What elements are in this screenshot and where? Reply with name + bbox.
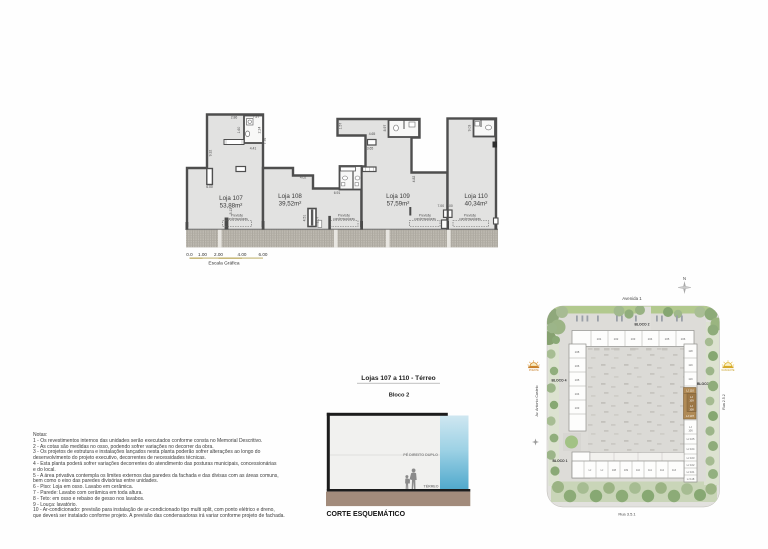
svg-text:7.76: 7.76 xyxy=(263,138,267,145)
svg-text:LJ 110: LJ 110 xyxy=(686,389,694,393)
svg-text:40,34m²: 40,34m² xyxy=(465,201,488,208)
svg-text:BLOCO 1: BLOCO 1 xyxy=(552,459,567,463)
svg-text:CORTE ESQUEMÁTICO: CORTE ESQUEMÁTICO xyxy=(327,509,406,518)
svg-text:Rua 3.5.1: Rua 3.5.1 xyxy=(618,512,636,517)
svg-text:106: 106 xyxy=(575,364,580,368)
svg-text:3.65: 3.65 xyxy=(367,147,374,151)
svg-text:103: 103 xyxy=(575,406,580,410)
svg-text:119: 119 xyxy=(688,363,693,367)
svg-text:105: 105 xyxy=(575,378,580,382)
svg-text:4.00: 4.00 xyxy=(446,204,453,208)
svg-text:0.0: 0.0 xyxy=(186,252,193,257)
svg-text:2.86: 2.86 xyxy=(231,116,238,120)
svg-text:109: 109 xyxy=(624,469,629,472)
svg-text:LJ 118: LJ 118 xyxy=(687,477,695,481)
svg-text:PÉ DIREITO DUPLO: PÉ DIREITO DUPLO xyxy=(403,452,438,457)
svg-text:104: 104 xyxy=(575,392,580,396)
svg-text:LJ 104: LJ 104 xyxy=(687,447,695,451)
svg-text:condensadoras: condensadoras xyxy=(459,217,481,221)
svg-text:4.82: 4.82 xyxy=(412,176,416,183)
svg-text:108: 108 xyxy=(612,469,617,472)
svg-text:condensadoras: condensadoras xyxy=(226,217,248,221)
svg-text:106: 106 xyxy=(688,428,693,432)
svg-text:39,52m²: 39,52m² xyxy=(279,201,302,208)
svg-text:119: 119 xyxy=(688,377,693,381)
svg-text:2.00: 2.00 xyxy=(214,252,223,257)
svg-text:101: 101 xyxy=(597,337,602,341)
svg-text:108: 108 xyxy=(689,407,694,411)
svg-text:113: 113 xyxy=(672,469,677,472)
svg-text:BLOCO 2: BLOCO 2 xyxy=(634,323,649,327)
svg-text:4.02: 4.02 xyxy=(300,176,307,180)
svg-text:9.32: 9.32 xyxy=(209,150,213,157)
svg-text:1.60: 1.60 xyxy=(237,127,241,134)
svg-text:4.51: 4.51 xyxy=(303,215,307,222)
svg-text:8.97: 8.97 xyxy=(383,125,387,132)
svg-text:105: 105 xyxy=(665,337,670,341)
svg-text:POENTE: POENTE xyxy=(529,369,539,372)
svg-text:5.13: 5.13 xyxy=(229,208,233,215)
svg-text:Loja 109: Loja 109 xyxy=(386,193,410,200)
svg-text:4.41: 4.41 xyxy=(250,147,257,151)
svg-text:LJ 102: LJ 102 xyxy=(687,463,695,467)
svg-text:103: 103 xyxy=(631,337,636,341)
svg-text:9.03: 9.03 xyxy=(468,125,472,132)
svg-text:109: 109 xyxy=(689,398,694,402)
svg-text:1.00: 1.00 xyxy=(198,252,207,257)
svg-text:111: 111 xyxy=(648,469,652,472)
svg-text:LJ 107: LJ 107 xyxy=(686,414,694,418)
svg-text:Loja 110: Loja 110 xyxy=(464,193,488,200)
svg-text:N: N xyxy=(683,276,686,281)
svg-text:1.57: 1.57 xyxy=(339,123,343,130)
svg-text:4.00: 4.00 xyxy=(238,252,247,257)
svg-text:6.00: 6.00 xyxy=(206,185,213,189)
svg-text:Avenida 1: Avenida 1 xyxy=(622,296,642,301)
svg-text:Av. Antonio Castelo: Av. Antonio Castelo xyxy=(535,385,539,416)
svg-text:2.24: 2.24 xyxy=(258,127,262,134)
svg-text:6.91: 6.91 xyxy=(334,191,341,195)
svg-text:Bloco 2: Bloco 2 xyxy=(389,392,410,398)
svg-text:LJ 105: LJ 105 xyxy=(687,437,695,441)
svg-text:TÉRREO: TÉRREO xyxy=(424,483,439,488)
svg-text:110: 110 xyxy=(636,469,641,472)
svg-text:118: 118 xyxy=(688,349,693,353)
svg-text:112: 112 xyxy=(660,469,665,472)
svg-text:104: 104 xyxy=(648,337,653,341)
svg-text:Lojas 107 a 110 - Térreo: Lojas 107 a 110 - Térreo xyxy=(361,375,435,382)
svg-text:102: 102 xyxy=(614,337,619,341)
svg-text:57,59m²: 57,59m² xyxy=(387,201,410,208)
svg-text:6.00: 6.00 xyxy=(259,252,268,257)
svg-text:Rua 2.5.2: Rua 2.5.2 xyxy=(722,394,726,410)
svg-text:BLOCO 4: BLOCO 4 xyxy=(551,379,566,383)
svg-text:108: 108 xyxy=(575,350,580,354)
svg-text:LJ 101: LJ 101 xyxy=(687,470,695,474)
svg-text:Loja 108: Loja 108 xyxy=(278,193,302,200)
svg-text:4.65: 4.65 xyxy=(369,132,376,136)
svg-text:LJ 103: LJ 103 xyxy=(687,456,695,460)
svg-text:106: 106 xyxy=(681,337,686,341)
svg-text:1.07: 1.07 xyxy=(316,217,320,224)
svg-text:Loja 107: Loja 107 xyxy=(219,195,243,202)
svg-text:Escala Gráfica: Escala Gráfica xyxy=(208,261,240,267)
svg-text:7.00: 7.00 xyxy=(437,204,444,208)
svg-text:7.27: 7.27 xyxy=(253,115,260,119)
svg-text:NASCENTE: NASCENTE xyxy=(721,369,734,372)
